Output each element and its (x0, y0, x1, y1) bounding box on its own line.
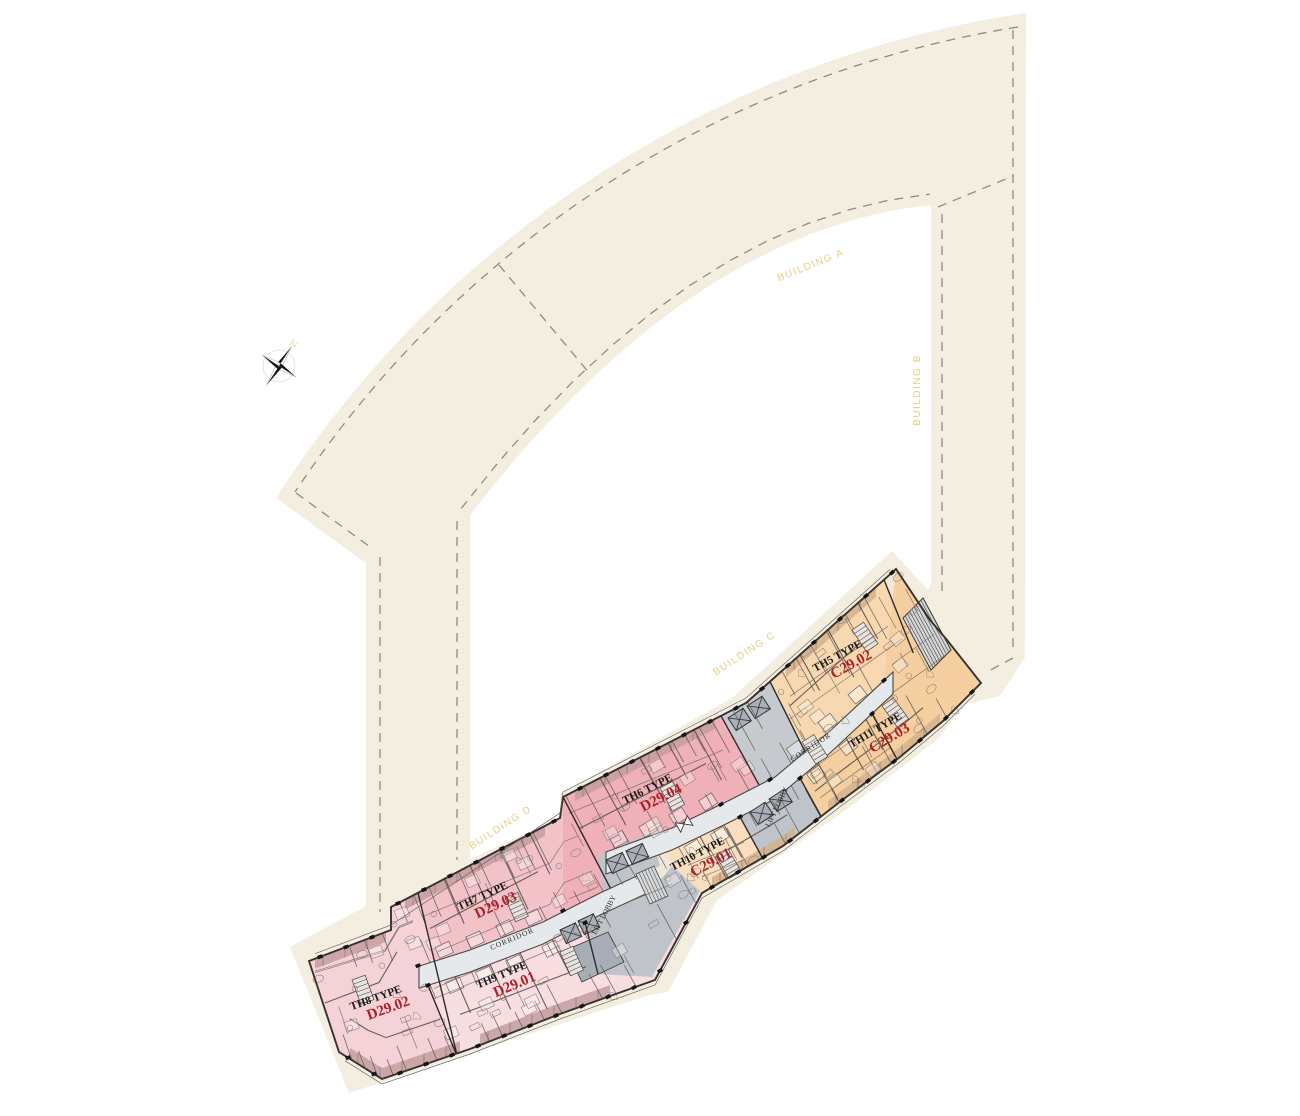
svg-text:BUILDING B: BUILDING B (912, 354, 923, 426)
